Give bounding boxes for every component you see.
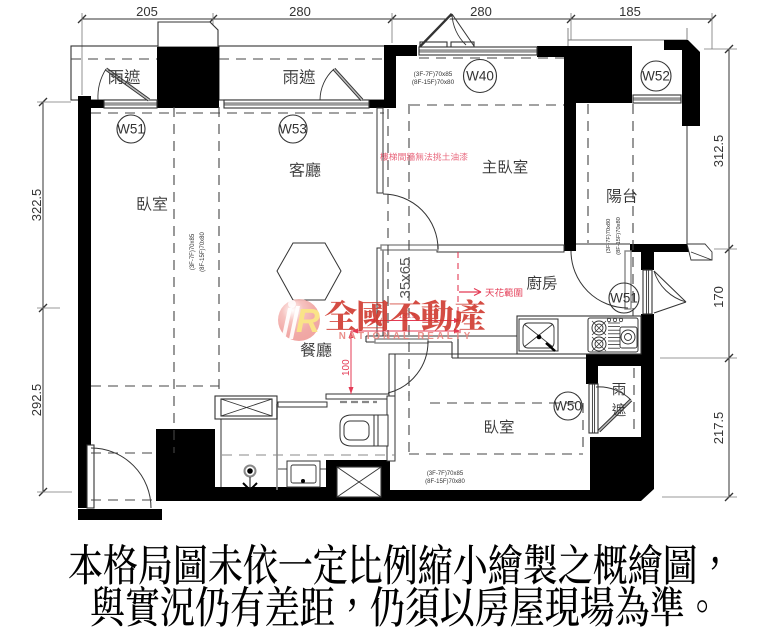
svg-text:NATIONAL REALTY: NATIONAL REALTY xyxy=(339,331,473,342)
svg-text:R: R xyxy=(296,302,320,339)
svg-text:W51: W51 xyxy=(117,122,145,137)
svg-text:(3F-7F)70x80: (3F-7F)70x80 xyxy=(606,219,612,253)
svg-text:(3F-7F)70x85: (3F-7F)70x85 xyxy=(190,233,196,270)
svg-text:(8F-15F)70x80: (8F-15F)70x80 xyxy=(200,231,206,271)
svg-text:280: 280 xyxy=(470,4,492,19)
svg-text:100: 100 xyxy=(341,359,352,376)
svg-text:W51: W51 xyxy=(610,291,638,306)
svg-text:W52: W52 xyxy=(642,69,670,84)
svg-text:322.5: 322.5 xyxy=(29,189,44,222)
svg-text:292.5: 292.5 xyxy=(29,384,44,417)
svg-text:W40: W40 xyxy=(466,69,494,84)
svg-text:205: 205 xyxy=(136,4,158,19)
svg-text:W50: W50 xyxy=(554,399,582,414)
svg-text:35x65: 35x65 xyxy=(397,258,414,299)
svg-text:(3F-7F)70x85: (3F-7F)70x85 xyxy=(414,71,453,78)
svg-text:(8F-15F)70x80: (8F-15F)70x80 xyxy=(425,479,465,485)
svg-text:185: 185 xyxy=(619,4,641,19)
svg-text:217.5: 217.5 xyxy=(711,412,726,445)
svg-text:280: 280 xyxy=(289,4,311,19)
svg-text:312.5: 312.5 xyxy=(711,135,726,168)
svg-text:(8F-15F)70x80: (8F-15F)70x80 xyxy=(412,79,455,86)
svg-text:170: 170 xyxy=(711,286,726,308)
svg-text:(8F-15F)70x80: (8F-15F)70x80 xyxy=(616,217,622,255)
svg-text:W53: W53 xyxy=(279,122,307,137)
svg-text:(3F-7F)70x85: (3F-7F)70x85 xyxy=(427,471,464,477)
